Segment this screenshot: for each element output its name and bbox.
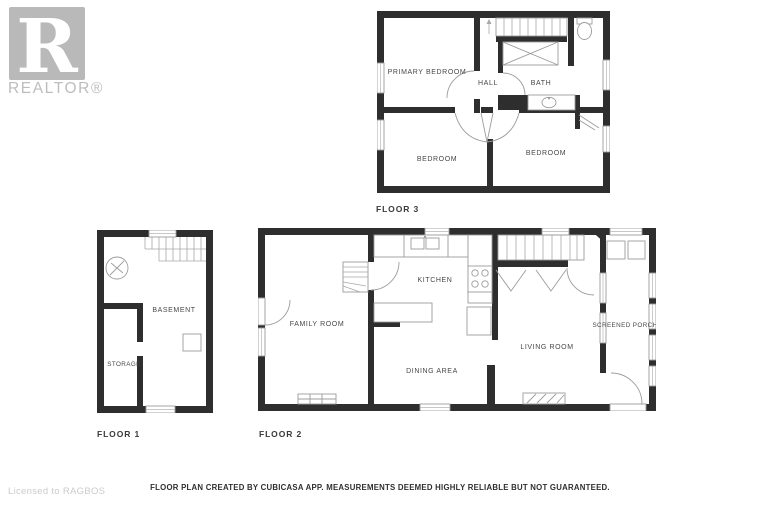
- room-label-storage: STORAGE: [107, 361, 140, 368]
- room-label-basement: BASEMENT: [152, 307, 195, 314]
- fireplace-hearth-icon: [298, 393, 565, 404]
- floor2-plan: FAMILY ROOM KITCHEN DINING AREA LIVING R…: [258, 228, 656, 411]
- kitchen-counter: [374, 235, 492, 335]
- floor-plan-page: R REALTOR®: [0, 0, 760, 505]
- porch-storage-boxes: [607, 241, 645, 259]
- toilet-icon: [577, 18, 592, 40]
- staircase-icon: [487, 18, 568, 36]
- room-label-living-room: LIVING ROOM: [520, 344, 573, 351]
- room-label-bedroom-left: BEDROOM: [417, 156, 457, 163]
- realtor-watermark: R REALTOR®: [6, 4, 116, 100]
- room-label-kitchen: KITCHEN: [418, 277, 453, 284]
- disclaimer-text: FLOOR PLAN CREATED BY CUBICASA APP. MEAS…: [0, 483, 760, 492]
- room-label-dining-area: DINING AREA: [406, 368, 458, 375]
- floor1-windows: [146, 230, 176, 413]
- bifold-door-icon: [496, 270, 566, 291]
- room-label-hall: HALL: [478, 80, 498, 87]
- floor3-label: FLOOR 3: [376, 204, 419, 214]
- closet-door-icon: [579, 115, 599, 130]
- closet-x-icon: [503, 42, 558, 65]
- sink-icon: [528, 95, 575, 110]
- floor1-label: FLOOR 1: [97, 429, 140, 439]
- floor1-plan: BASEMENT STORAGE: [97, 230, 213, 413]
- realtor-brand-text: REALTOR®: [8, 80, 104, 98]
- furnace-icon: [183, 334, 201, 351]
- door-arc-icon: [265, 262, 642, 404]
- room-label-family-room: FAMILY ROOM: [290, 321, 345, 328]
- floor2-label: FLOOR 2: [259, 429, 302, 439]
- kitchen-peninsula: [374, 303, 432, 322]
- kitchen-island: [467, 307, 491, 335]
- realtor-logo-letter: R: [16, 4, 78, 90]
- room-label-screened-porch: SCREENED PORCH: [592, 322, 656, 329]
- room-label-bath: BATH: [531, 80, 552, 87]
- staircase-icon: [145, 237, 206, 261]
- floor3-plan: PRIMARY BEDROOM HALL BATH BEDROOM BEDROO…: [377, 11, 610, 193]
- stove-icon: [468, 266, 492, 292]
- fan-icon: [106, 257, 128, 279]
- staircase-icon-living: [498, 235, 584, 260]
- room-label-bedroom-right: BEDROOM: [526, 150, 566, 157]
- room-label-primary-bedroom: PRIMARY BEDROOM: [388, 69, 467, 76]
- staircase-icon: [343, 262, 368, 292]
